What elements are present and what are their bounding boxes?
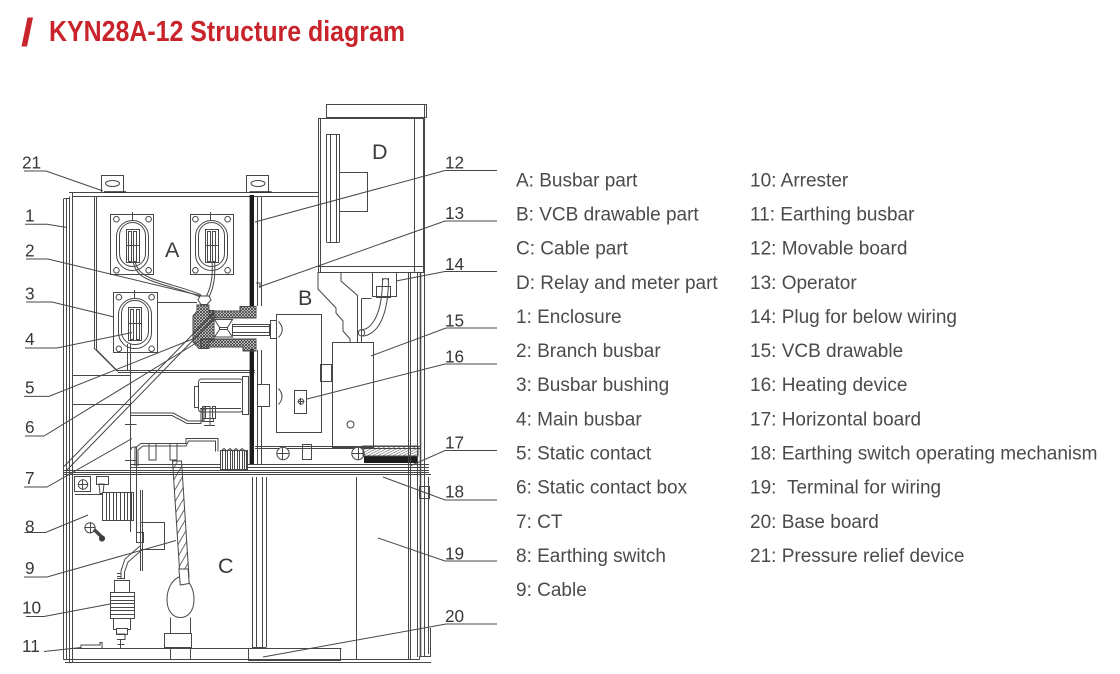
svg-text:KYN28A-12 Structure diagram: KYN28A-12 Structure diagram: [49, 16, 405, 48]
svg-text:9: 9: [25, 558, 35, 578]
svg-text:6: Static contact box: 6: Static contact box: [516, 478, 688, 499]
svg-text:21: Pressure relief device: 21: Pressure relief device: [750, 546, 964, 567]
svg-text:20: Base board: 20: Base board: [750, 512, 879, 533]
svg-text:8: Earthing switch: 8: Earthing switch: [516, 546, 666, 567]
svg-text:9: Cable: 9: Cable: [516, 580, 587, 601]
svg-text:B: B: [298, 286, 312, 310]
svg-text:A: Busbar part: A: Busbar part: [516, 170, 638, 191]
svg-text:7: 7: [25, 468, 35, 488]
svg-text:7: CT: 7: CT: [516, 512, 563, 533]
svg-text:11: Earthing busbar: 11: Earthing busbar: [750, 205, 915, 226]
svg-text:4: Main busbar: 4: Main busbar: [516, 409, 642, 430]
svg-text:19: Terminal for wiring: 19: Terminal for wiring: [750, 478, 941, 499]
svg-text:3: 3: [25, 284, 35, 304]
svg-text:14: Plug for below wiring: 14: Plug for below wiring: [750, 307, 957, 328]
svg-text:12: 12: [445, 153, 464, 173]
svg-text:11: 11: [22, 636, 40, 656]
svg-text:17: Horizontal board: 17: Horizontal board: [750, 409, 921, 430]
svg-text:A: A: [165, 238, 180, 262]
svg-text:21: 21: [22, 153, 41, 173]
svg-text:5: 5: [25, 378, 35, 398]
svg-text:13: Operator: 13: Operator: [750, 273, 857, 294]
svg-text:16: Heating device: 16: Heating device: [750, 375, 907, 396]
svg-text:C: Cable part: C: Cable part: [516, 239, 629, 260]
svg-text:1: 1: [25, 206, 35, 226]
svg-text:2: 2: [25, 241, 35, 261]
svg-text:17: 17: [445, 433, 464, 453]
svg-text:B: VCB drawable part: B: VCB drawable part: [516, 205, 699, 226]
svg-text:15: VCB drawable: 15: VCB drawable: [750, 341, 903, 362]
svg-text:18: 18: [445, 482, 464, 502]
svg-text:2: Branch busbar: 2: Branch busbar: [516, 341, 661, 362]
svg-text:C: C: [218, 554, 234, 578]
svg-text:13: 13: [445, 203, 464, 223]
svg-text:8: 8: [25, 517, 35, 537]
svg-text:D: D: [372, 140, 388, 164]
svg-text:D: Relay and meter part: D: Relay and meter part: [516, 273, 718, 294]
svg-text:10: Arrester: 10: Arrester: [750, 170, 849, 191]
svg-text:5: Static contact: 5: Static contact: [516, 444, 652, 465]
svg-text:20: 20: [445, 606, 464, 626]
svg-text:3: Busbar bushing: 3: Busbar bushing: [516, 375, 669, 396]
svg-text:18: Earthing switch operating: 18: Earthing switch operating mechanism: [750, 444, 1097, 465]
svg-text:4: 4: [25, 329, 35, 349]
svg-text:6: 6: [25, 417, 35, 437]
svg-text:12: Movable board: 12: Movable board: [750, 239, 907, 260]
svg-text:1: Enclosure: 1: Enclosure: [516, 307, 622, 328]
svg-text:10: 10: [22, 598, 41, 618]
